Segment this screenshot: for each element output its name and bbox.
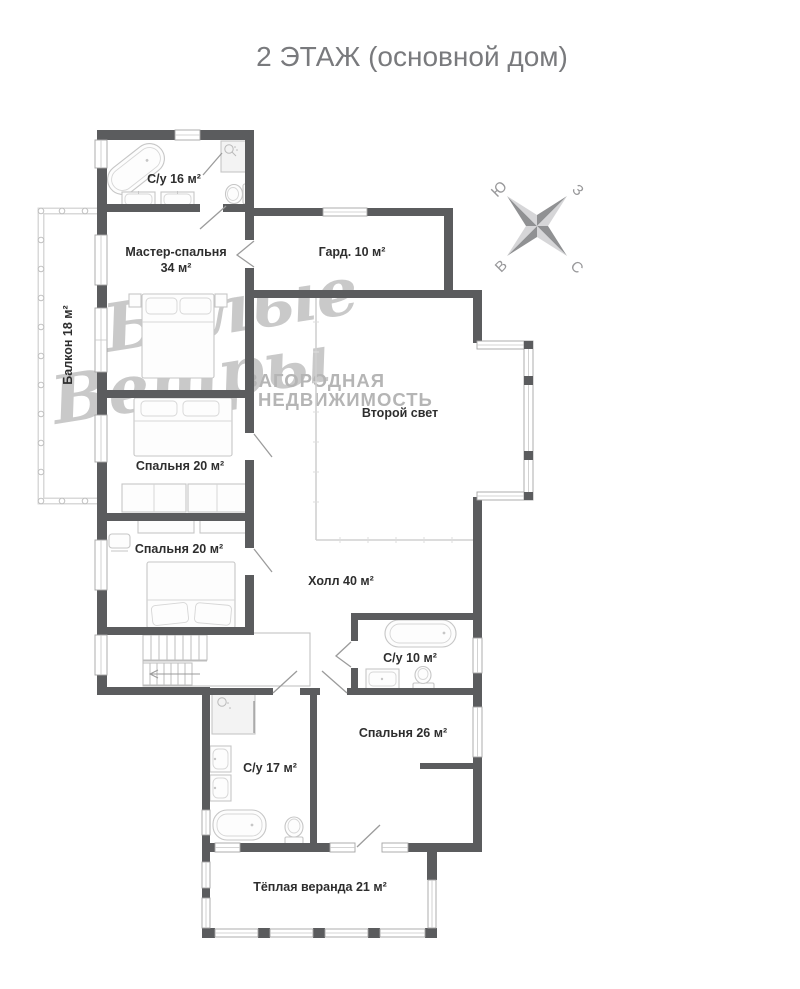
window	[202, 810, 210, 835]
wall-segment	[258, 928, 270, 938]
window	[95, 415, 107, 462]
toilet-icon	[285, 817, 303, 844]
wall-segment	[351, 613, 477, 620]
wall-segment	[202, 928, 215, 938]
wall-segment	[310, 688, 317, 845]
wall-segment	[347, 688, 477, 695]
compass-east-label: В	[492, 257, 511, 276]
wall-segment	[367, 208, 448, 216]
sink-icon	[210, 775, 231, 801]
door-swing	[357, 825, 380, 847]
second-light-railing	[313, 298, 477, 543]
wall-segment	[245, 130, 254, 216]
wall-segment	[223, 204, 254, 212]
wall-segment	[97, 687, 209, 695]
door-swing	[200, 206, 226, 229]
chair-icon	[109, 534, 130, 551]
shower-icon	[212, 692, 255, 734]
bathtub-icon	[213, 810, 266, 840]
window	[473, 707, 482, 757]
window	[95, 540, 107, 590]
door-swing	[273, 671, 297, 693]
compass-south-label: Ю	[488, 178, 511, 201]
window	[215, 843, 240, 852]
bathtub-icon	[102, 137, 171, 200]
bay-window	[477, 341, 533, 500]
room-label-bathroom17: С/у 17 м²	[243, 761, 297, 775]
compass-north-label: С	[567, 258, 587, 278]
veranda-glazing	[202, 862, 436, 937]
sink-icon	[210, 746, 231, 772]
room-label-bathroom16: С/у 16 м²	[147, 172, 201, 186]
bed-icon	[134, 398, 232, 456]
wall-segment	[368, 928, 380, 938]
wall-segment	[202, 852, 210, 862]
wardrobe-icon	[122, 484, 246, 512]
wall-segment	[97, 627, 254, 635]
wall-segment	[254, 290, 482, 298]
bed-icon	[129, 294, 227, 378]
wall-segment	[202, 687, 210, 810]
wall-segment	[97, 285, 107, 308]
wall-segment	[97, 390, 254, 398]
page-title: 2 ЭТАЖ (основной дом)	[256, 41, 568, 72]
compass-west-label: З	[568, 181, 586, 199]
room-label-veranda: Тёплая веранда 21 м²	[253, 880, 387, 894]
room-label-bedroom26: Спальня 26 м²	[359, 726, 447, 740]
room-label-wardrobe: Гард. 10 м²	[319, 245, 386, 259]
door-swing	[254, 434, 272, 457]
wall-segment	[420, 763, 477, 769]
wall-segment	[97, 130, 175, 140]
bed-icon	[147, 562, 235, 628]
room-label-bedroom20-1: Спальня 20 м²	[136, 459, 224, 473]
door-swing	[336, 642, 351, 667]
window	[95, 235, 107, 285]
wall-segment	[313, 928, 325, 938]
wall-segment	[245, 216, 254, 240]
room-label-hall: Холл 40 м²	[308, 574, 374, 588]
balcony-door	[95, 308, 107, 372]
wall-segment	[473, 298, 482, 343]
room-label-second-light: Второй свет	[362, 406, 438, 420]
room-label-bathroom10: С/у 10 м²	[383, 651, 437, 665]
wall-segment	[427, 928, 437, 938]
room-label-master-bedroom: Мастер-спальня	[125, 245, 226, 259]
wall-segment	[97, 168, 107, 235]
wall-segment	[444, 208, 453, 298]
wall-segment	[245, 268, 254, 390]
wall-segment	[97, 204, 200, 212]
compass-rose: Ю З В С	[488, 178, 587, 277]
floor-plan-page: 2 ЭТАЖ (основной дом) Белые Ветры ЗАГОРО…	[0, 0, 800, 989]
window	[382, 843, 408, 852]
sink-icon	[366, 669, 399, 689]
window	[330, 843, 355, 852]
door-swing	[237, 241, 254, 267]
door-swing	[254, 549, 272, 572]
door-swing	[203, 153, 222, 175]
toilet-icon	[413, 667, 434, 691]
wall-segment	[97, 513, 254, 521]
room-label-balcony: Балкон 18 м²	[61, 305, 75, 384]
wall-segment	[473, 757, 482, 852]
window	[473, 638, 482, 673]
door-swing	[322, 671, 347, 693]
wall-segment	[245, 575, 254, 635]
floor-plan-canvas: 2 ЭТАЖ (основной дом) Белые Ветры ЗАГОРО…	[0, 0, 800, 989]
compass-star-icon	[507, 196, 567, 256]
stairs	[143, 633, 310, 686]
bathtub-icon	[385, 620, 456, 647]
wall-segment	[245, 460, 254, 548]
window	[323, 208, 367, 216]
window	[95, 140, 107, 168]
wall-segment	[351, 668, 358, 695]
wall-segment	[97, 462, 107, 540]
wall-segment	[427, 852, 437, 880]
wall-segment	[245, 398, 254, 433]
wall-segment	[254, 208, 323, 216]
wall-segment	[408, 843, 482, 852]
wall-segment	[210, 688, 273, 695]
window	[95, 635, 107, 675]
window	[175, 130, 200, 140]
wall-segment	[202, 888, 210, 898]
wall-segment	[202, 843, 215, 852]
wall-segment	[240, 843, 330, 852]
room-label-master-bedroom-area: 34 м²	[161, 261, 192, 275]
room-label-bedroom20-2: Спальня 20 м²	[135, 542, 223, 556]
